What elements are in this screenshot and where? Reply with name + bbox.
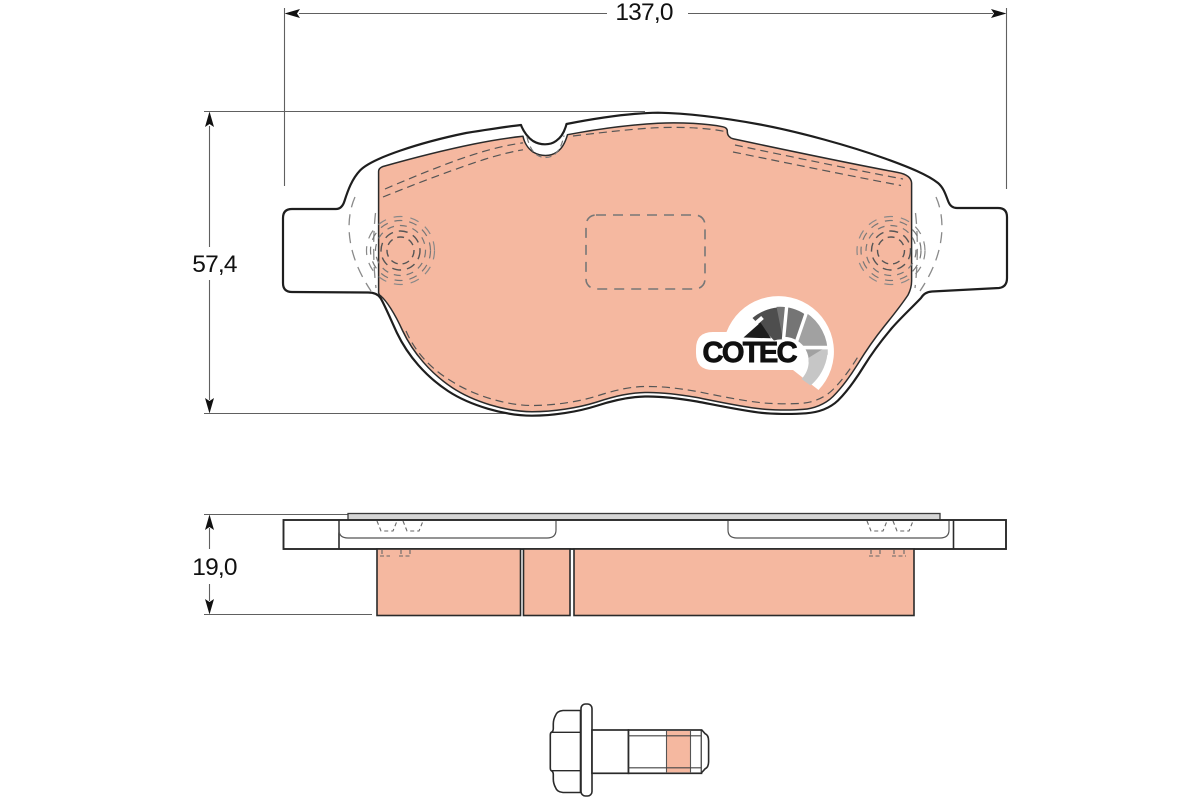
svg-text:19,0: 19,0: [192, 554, 237, 581]
svg-text:57,4: 57,4: [192, 251, 237, 278]
svg-text:COTEC: COTEC: [703, 337, 798, 369]
svg-text:137,0: 137,0: [615, 0, 672, 26]
